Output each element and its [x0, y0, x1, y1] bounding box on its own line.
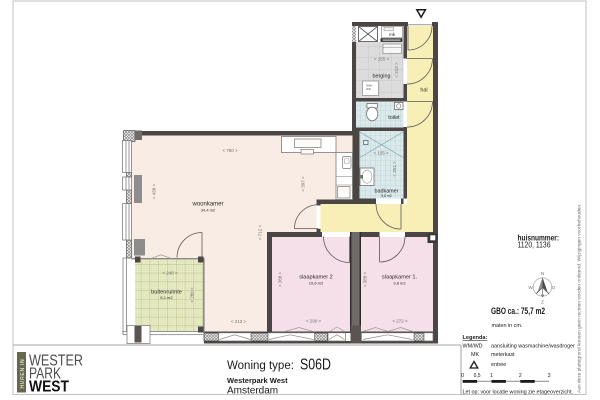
svg-text:< 213 >: < 213 > — [231, 319, 247, 324]
svg-text:S06D: S06D — [300, 357, 331, 374]
svg-text:Westerpark West: Westerpark West — [227, 376, 288, 385]
svg-text:10,6 m2: 10,6 m2 — [309, 281, 324, 286]
svg-text:0,5: 0,5 — [474, 373, 481, 379]
svg-text:meterkast: meterkast — [491, 352, 515, 358]
svg-text:< 155 >: < 155 > — [374, 57, 390, 62]
svg-text:< 438 >: < 438 > — [152, 183, 157, 199]
svg-text:< 155 >: < 155 > — [373, 151, 389, 156]
svg-text:Woning type:: Woning type: — [227, 360, 294, 372]
svg-text:34,4 m2: 34,4 m2 — [201, 208, 216, 213]
svg-text:WEST: WEST — [29, 379, 69, 396]
svg-text:< 712 >: < 712 > — [258, 224, 263, 240]
svg-text:< 280 >: < 280 > — [190, 287, 195, 303]
svg-text:hal: hal — [420, 88, 427, 94]
svg-text:1: 1 — [490, 373, 493, 379]
svg-text:GBO ca.: 75,7 m2: GBO ca.: 75,7 m2 — [491, 306, 545, 316]
svg-text:< 248 >: < 248 > — [162, 271, 178, 276]
svg-text:< 272 >: < 272 > — [392, 319, 408, 324]
svg-text:Let op: voor locatie woning: Let op: voor locatie woning zie etageove… — [463, 390, 574, 396]
svg-text:berging: berging — [373, 74, 391, 80]
svg-text:5,8 m2: 5,8 m2 — [381, 194, 391, 198]
svg-text:entree: entree — [491, 362, 506, 368]
svg-text:< 750 >: < 750 > — [222, 148, 238, 153]
svg-text:mk: mk — [389, 32, 396, 37]
svg-text:< 388 >: < 388 > — [363, 271, 368, 287]
svg-text:toilet: toilet — [388, 115, 400, 121]
svg-text:maten in cm.: maten in cm. — [492, 323, 523, 329]
svg-text:6,1 m2: 6,1 m2 — [160, 295, 173, 300]
svg-text:3: 3 — [548, 373, 551, 379]
svg-text:9,8 m2: 9,8 m2 — [393, 281, 406, 286]
svg-text:O: O — [552, 285, 556, 290]
svg-text:W: W — [528, 285, 533, 290]
svg-text:MK: MK — [471, 352, 479, 358]
svg-text:< 290 >: < 290 > — [306, 319, 322, 324]
svg-text:HUREN IN: HUREN IN — [20, 359, 26, 389]
svg-text:WD: WD — [366, 87, 372, 91]
svg-text:Amsterdam: Amsterdam — [227, 386, 278, 397]
svg-text:N: N — [541, 271, 544, 276]
svg-text:Legenda:: Legenda: — [463, 335, 488, 341]
svg-text:< 397 >: < 397 > — [301, 176, 306, 192]
svg-text:2: 2 — [519, 373, 522, 379]
svg-text:aansluiting wasmachine/wasdrog: aansluiting wasmachine/wasdroger — [491, 344, 575, 350]
svg-text:0: 0 — [461, 373, 464, 379]
svg-text:< 251 >: < 251 > — [392, 161, 397, 177]
svg-text:Aan deze plattegrond kunnen ge: Aan deze plattegrond kunnen geen rechten… — [577, 204, 583, 393]
svg-text:WM/WD: WM/WD — [463, 344, 483, 350]
svg-text:< 213 >: < 213 > — [394, 62, 399, 78]
svg-text:< 388 >: < 388 > — [278, 271, 283, 287]
svg-text:1120, 1136: 1120, 1136 — [518, 240, 551, 249]
svg-text:Z: Z — [541, 300, 544, 305]
